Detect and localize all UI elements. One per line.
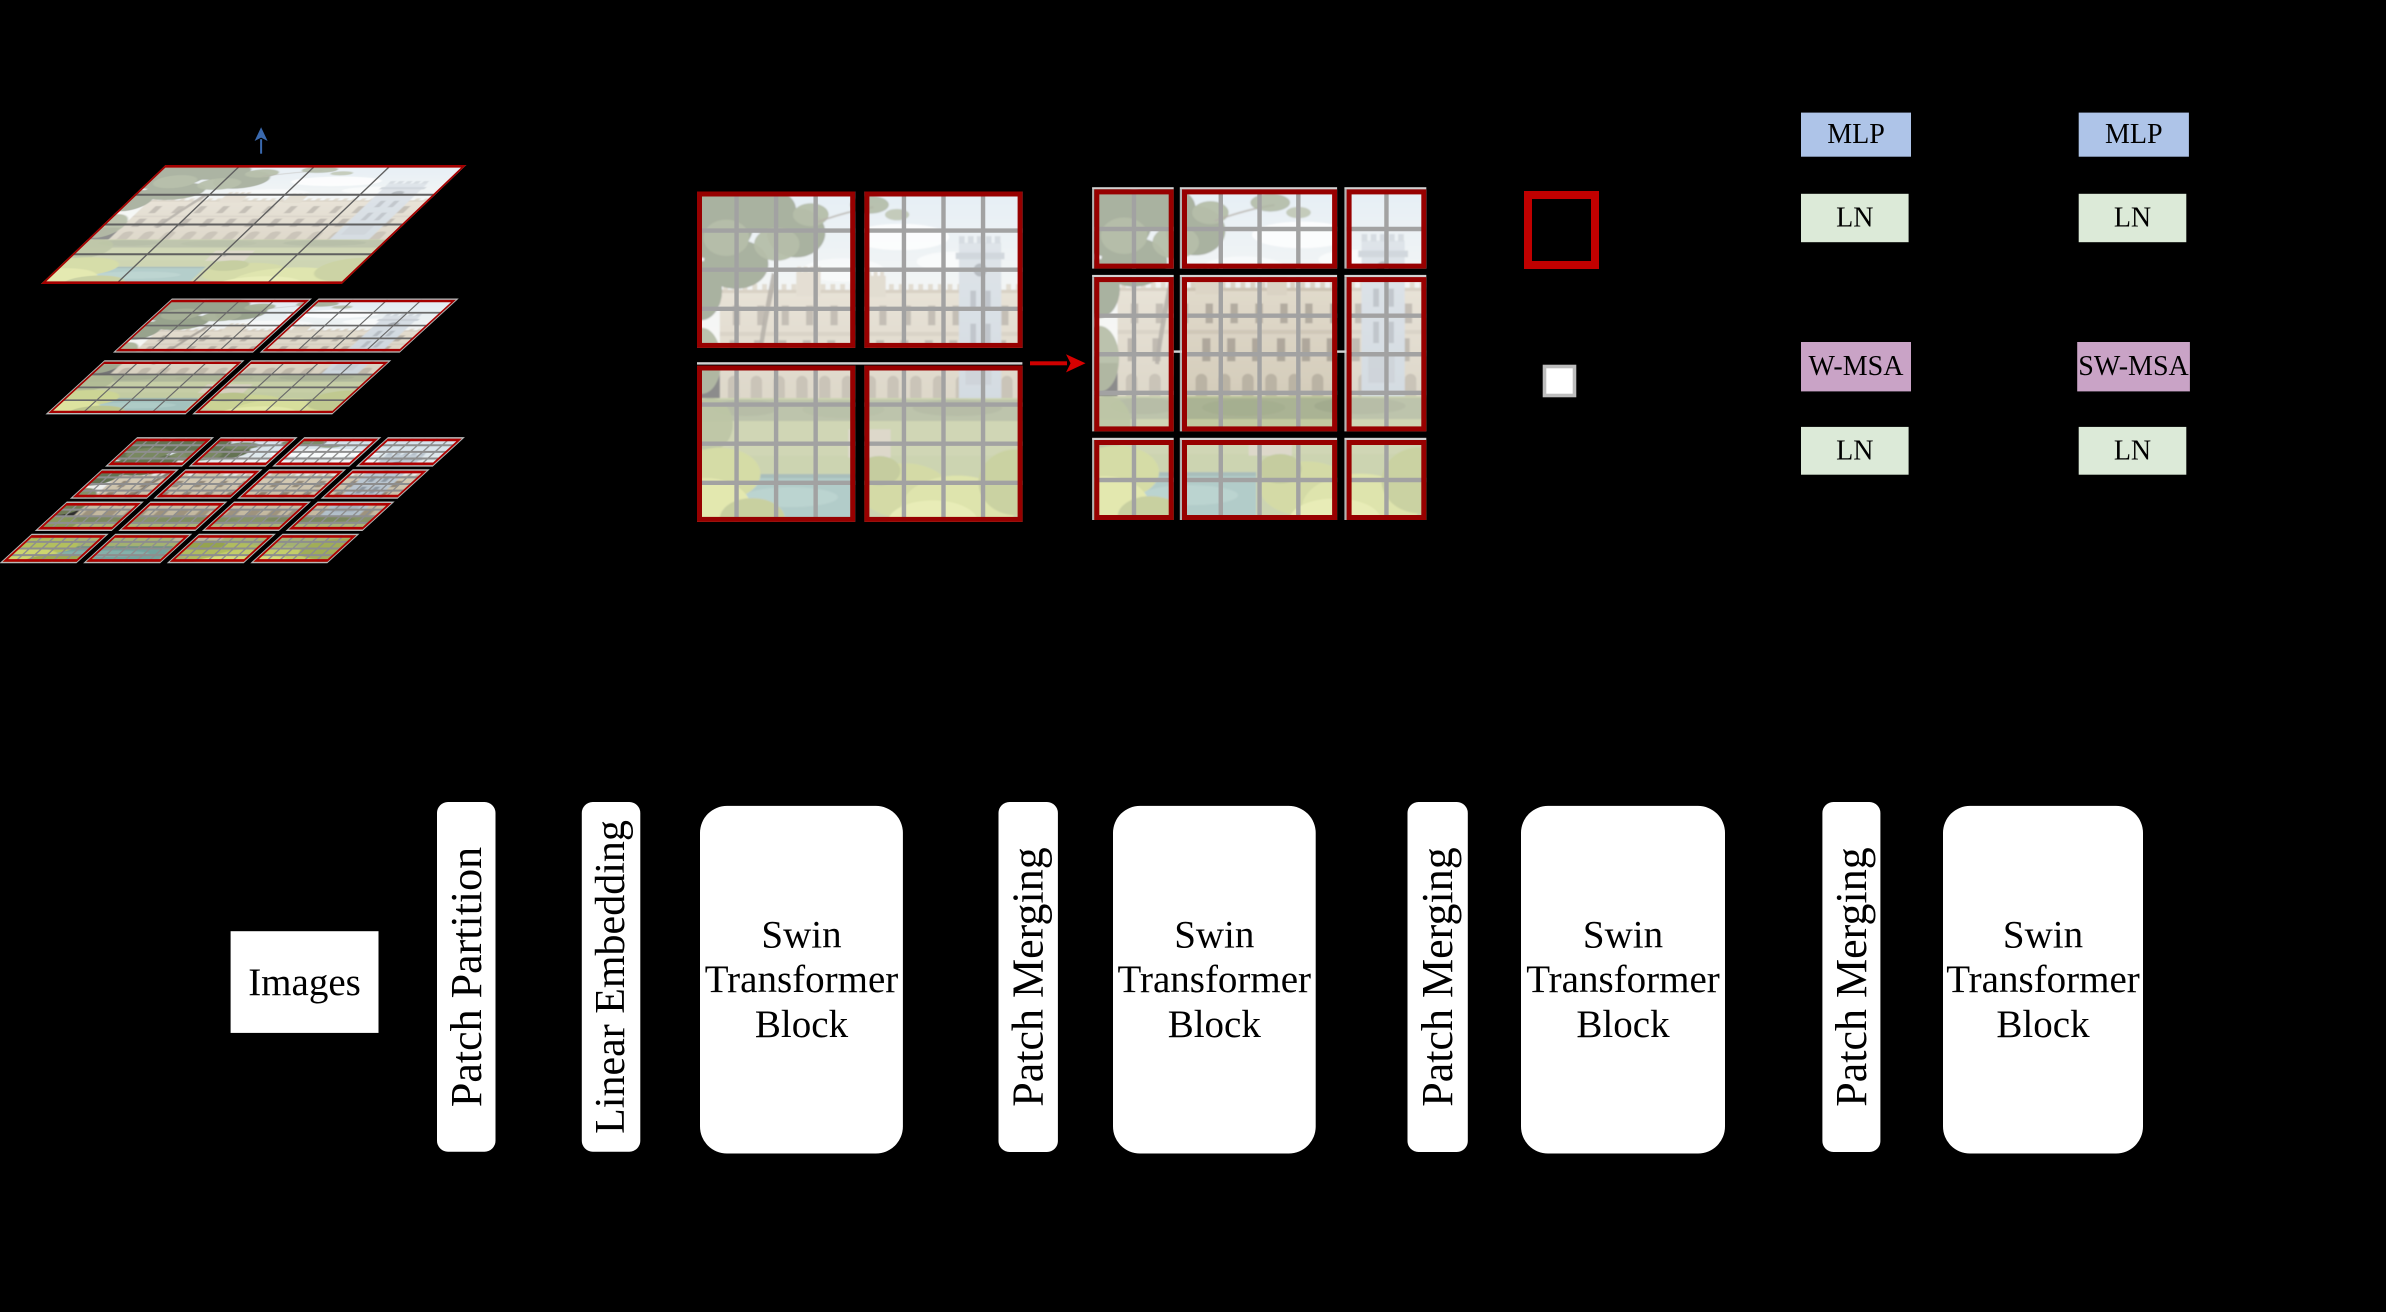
svg-text:Transformer: Transformer: [1118, 958, 1312, 1001]
svg-text:W-MSA: W-MSA: [1809, 351, 1905, 382]
svg-text:Block: Block: [1996, 1003, 2090, 1046]
svg-text:MLP: MLP: [2105, 119, 2163, 150]
svg-text:MLP: MLP: [1827, 119, 1885, 150]
svg-text:Patch Merging: Patch Merging: [1827, 847, 1876, 1107]
svg-text:Transformer: Transformer: [705, 958, 899, 1001]
svg-text:LN: LN: [1836, 435, 1873, 466]
svg-text:Block: Block: [1576, 1003, 1670, 1046]
svg-text:LN: LN: [1836, 203, 1873, 234]
svg-text:Patch Partition: Patch Partition: [442, 847, 491, 1107]
svg-text:Swin: Swin: [2003, 913, 2083, 956]
svg-text:SW-MSA: SW-MSA: [2078, 351, 2189, 382]
svg-text:LN: LN: [2114, 203, 2151, 234]
svg-text:Patch Merging: Patch Merging: [1004, 847, 1053, 1107]
svg-text:LN: LN: [2114, 435, 2151, 466]
svg-text:Images: Images: [248, 961, 361, 1004]
svg-text:Patch Merging: Patch Merging: [1413, 847, 1462, 1107]
svg-text:Swin: Swin: [1174, 913, 1254, 956]
svg-text:Swin: Swin: [1583, 913, 1663, 956]
svg-text:Linear Embedding: Linear Embedding: [588, 820, 634, 1134]
svg-text:Block: Block: [755, 1003, 849, 1046]
svg-text:Swin: Swin: [761, 913, 841, 956]
svg-text:Transformer: Transformer: [1526, 958, 1720, 1001]
svg-text:Transformer: Transformer: [1946, 958, 2140, 1001]
svg-text:Block: Block: [1168, 1003, 1262, 1046]
